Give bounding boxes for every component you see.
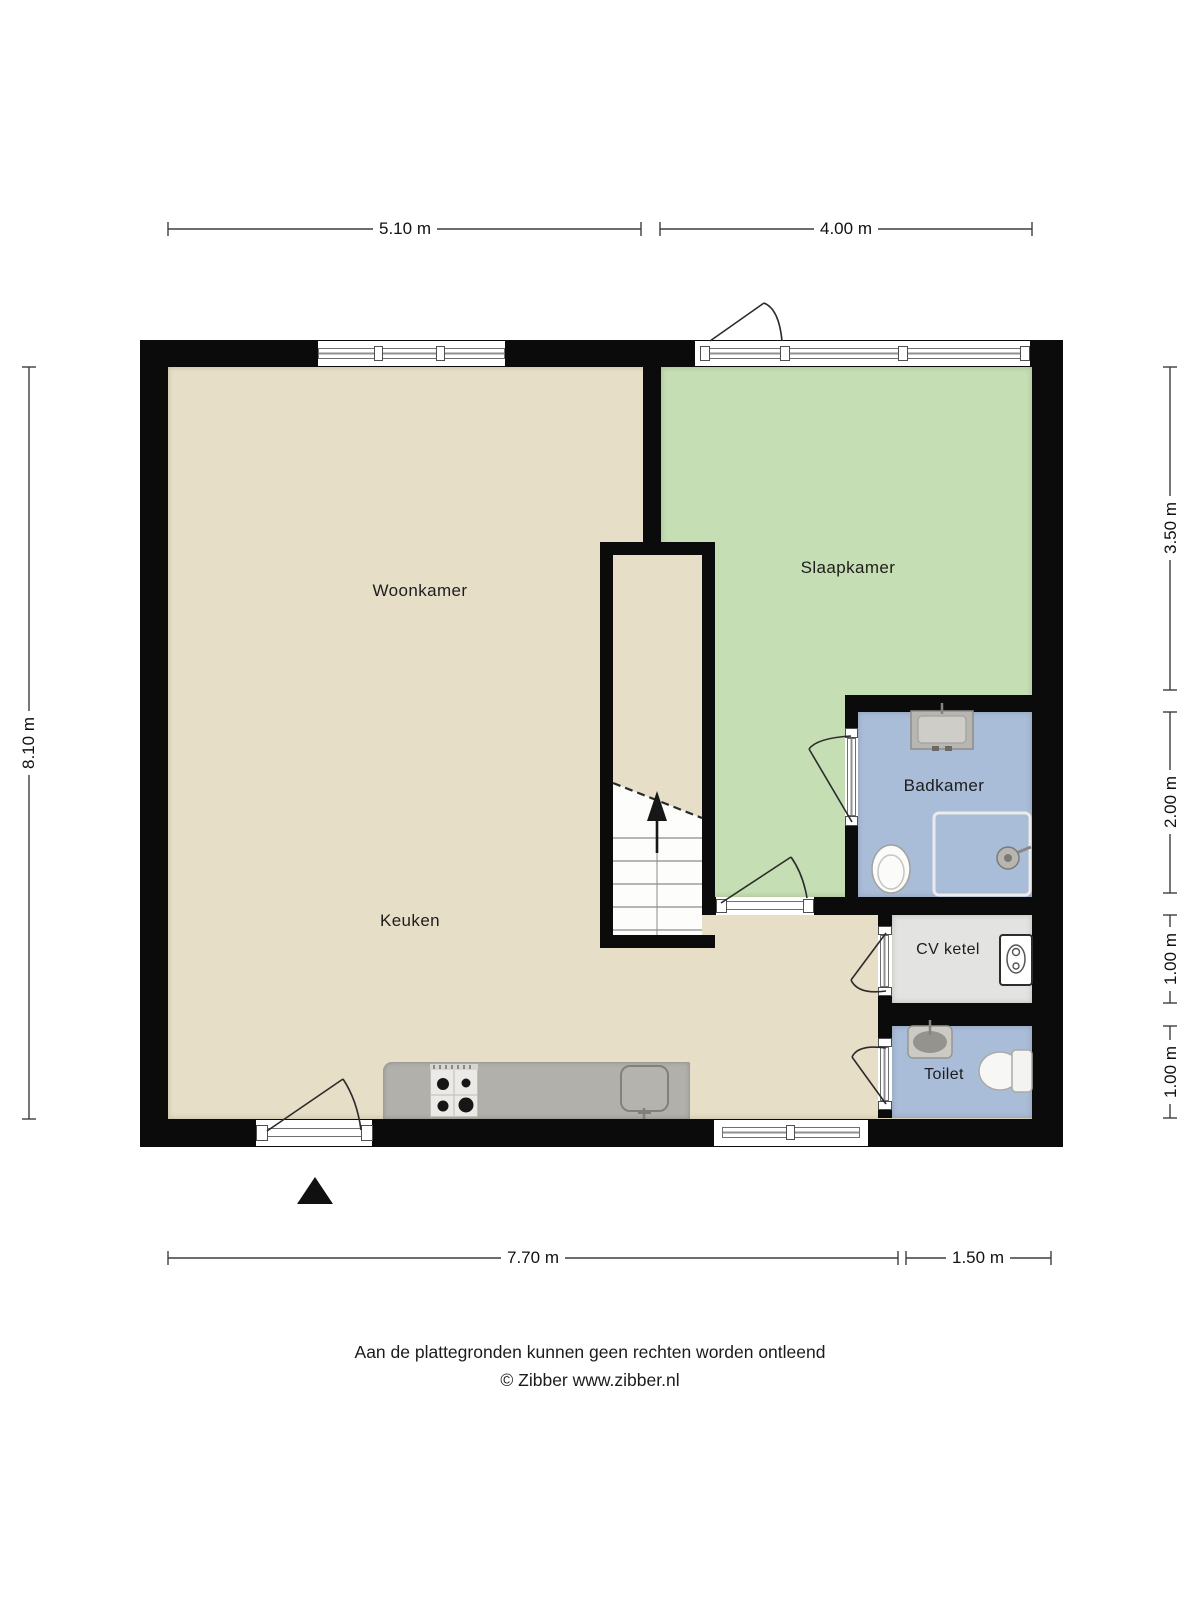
toilet-sink-icon <box>908 1020 952 1058</box>
dimension-lines <box>22 222 1177 1265</box>
footer-copyright: © Zibber www.zibber.nl <box>0 1366 1180 1394</box>
stove-icon <box>430 1064 478 1117</box>
badkamer-toilet-icon <box>872 845 910 893</box>
dim-top-2: 4.00 m <box>814 219 878 239</box>
toilet-wc-icon <box>979 1050 1032 1092</box>
footer: Aan de plattegronden kunnen geen rechten… <box>0 1338 1180 1394</box>
floorplan-canvas: Woonkamer Slaapkamer Badkamer Keuken CV … <box>0 0 1200 1600</box>
dim-left-1: 8.10 m <box>19 711 39 775</box>
door-swing-entrance <box>267 1079 361 1131</box>
footer-disclaimer: Aan de plattegronden kunnen geen rechten… <box>0 1338 1180 1366</box>
shower-icon <box>934 813 1031 895</box>
door-swing-slaapkamer <box>721 857 807 903</box>
dim-right-1: 3.50 m <box>1161 496 1181 560</box>
dim-top-1: 5.10 m <box>373 219 437 239</box>
dim-bottom-1: 7.70 m <box>501 1248 565 1268</box>
badkamer-sink-icon <box>911 703 973 751</box>
dim-right-4: 1.00 m <box>1161 1040 1181 1104</box>
door-swing-cv <box>851 933 886 992</box>
cv-boiler-icon <box>1000 935 1032 985</box>
room-label-slaapkamer: Slaapkamer <box>801 558 896 578</box>
door-swing-slaapkamer-exterior <box>710 303 782 341</box>
dim-right-2: 2.00 m <box>1161 770 1181 834</box>
room-label-keuken: Keuken <box>380 911 440 931</box>
door-swing-badkamer <box>809 736 852 822</box>
kitchen-sink-icon <box>621 1066 668 1119</box>
staircase-up-icon <box>613 783 702 935</box>
door-swing-arcs <box>267 303 886 1131</box>
room-label-badkamer: Badkamer <box>904 776 985 796</box>
room-label-cv-ketel: CV ketel <box>916 941 980 959</box>
room-label-woonkamer: Woonkamer <box>373 581 468 601</box>
north-arrow-icon <box>297 1177 333 1204</box>
room-label-toilet: Toilet <box>924 1066 964 1084</box>
dim-right-3: 1.00 m <box>1161 927 1181 991</box>
door-swing-toilet <box>852 1047 886 1104</box>
dim-bottom-2: 1.50 m <box>946 1248 1010 1268</box>
